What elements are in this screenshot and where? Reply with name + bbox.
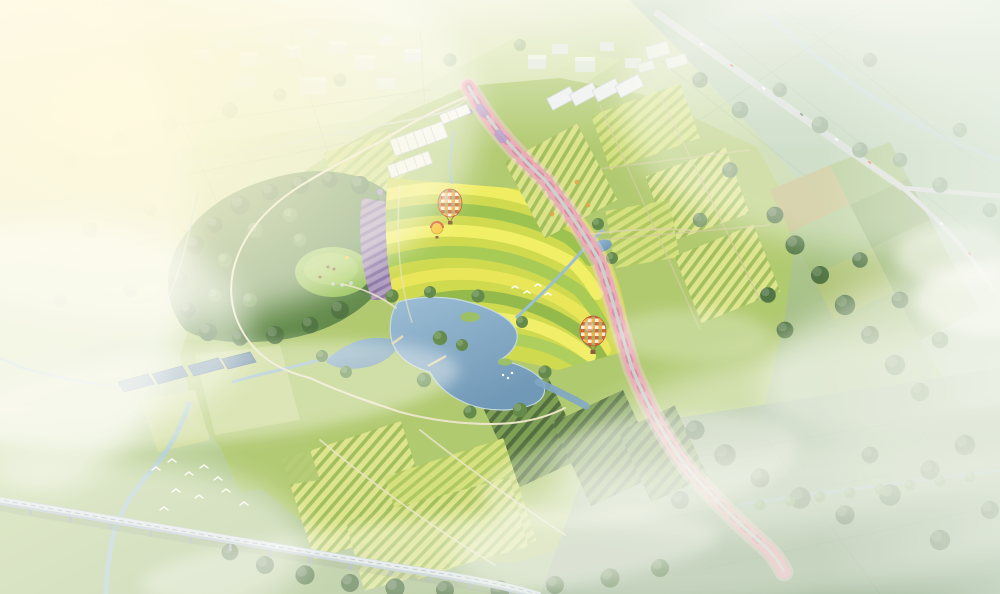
atmosphere-fog (0, 0, 1000, 594)
scene-canvas (0, 0, 1000, 594)
warm-light-wash (0, 0, 1000, 594)
aerial-masterplan-rendering (0, 0, 1000, 594)
